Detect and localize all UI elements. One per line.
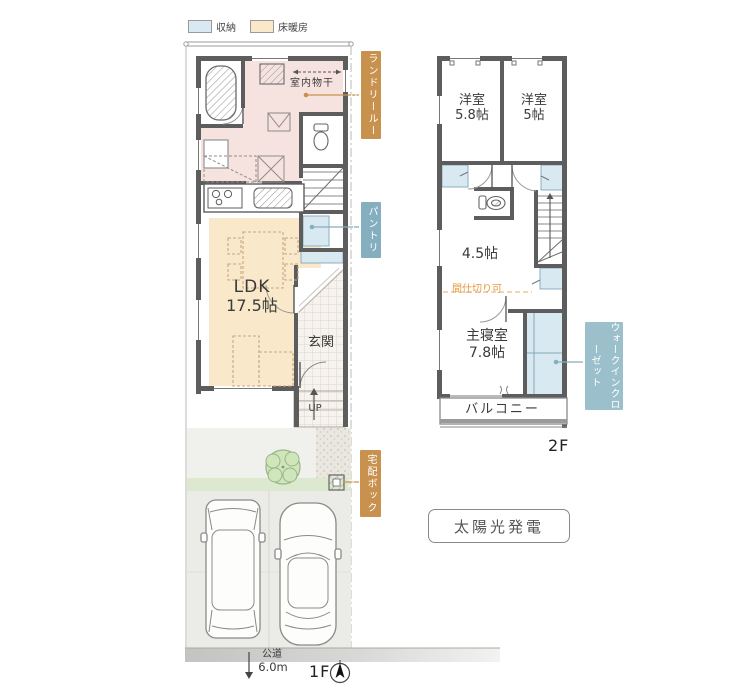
bedroom1-name: 洋室 bbox=[441, 94, 503, 108]
legend-item-floor-heating: 床暖房 bbox=[250, 19, 308, 34]
washing-machine-icon bbox=[260, 64, 284, 84]
free-room-size: 4.5帖 bbox=[448, 247, 512, 262]
callout-delivery-box: 宅配ボックス bbox=[360, 450, 381, 517]
road-width: 6.0m bbox=[254, 661, 292, 674]
callout-laundry-room: ランドリールーム bbox=[361, 51, 381, 139]
bedroom1-size: 5.8帖 bbox=[441, 109, 503, 123]
floorplan-page: 収納 床暖房 室内物干 LDK 17.5帖 玄関 UP 公道 6.0m 1F ラ… bbox=[0, 0, 750, 700]
ldk-size: 17.5帖 bbox=[207, 297, 297, 315]
genkan-label: 玄関 bbox=[297, 336, 345, 350]
partition-note: 間仕切り可 bbox=[452, 284, 502, 295]
road-strip bbox=[185, 648, 500, 662]
floor-heating-swatch bbox=[250, 20, 274, 33]
callout-pantry: パントリー bbox=[361, 202, 381, 258]
vanity-icon bbox=[204, 140, 228, 168]
up-label: UP bbox=[302, 403, 328, 414]
master-name: 主寝室 bbox=[447, 329, 527, 344]
bedroom2-size: 5帖 bbox=[505, 109, 563, 123]
legend: 収納 床暖房 bbox=[188, 19, 308, 34]
storage-label: 収納 bbox=[216, 19, 236, 34]
ldk-name: LDK bbox=[207, 278, 297, 297]
solar-power-label: 太陽光発電 bbox=[428, 509, 570, 543]
floor1-label: 1F bbox=[309, 663, 330, 681]
storage-swatch bbox=[188, 20, 212, 33]
floor-heating-label: 床暖房 bbox=[278, 19, 308, 34]
kitchen-counter bbox=[204, 184, 304, 212]
car-right bbox=[275, 503, 341, 645]
callout-walk-in-closet: ウォークインクローゼット bbox=[585, 322, 623, 410]
toilet-1f-icon bbox=[314, 124, 328, 150]
road-name: 公道 bbox=[256, 649, 288, 660]
master-size: 7.8帖 bbox=[447, 346, 527, 361]
compass-icon bbox=[331, 660, 350, 683]
toilet-2f-icon bbox=[479, 196, 505, 210]
building-1f bbox=[196, 56, 348, 427]
bathtub-icon bbox=[206, 66, 236, 120]
indoor-drying-label: 室内物干 bbox=[290, 78, 334, 89]
car-left bbox=[201, 500, 265, 638]
tree-icon bbox=[266, 450, 300, 484]
legend-item-storage: 収納 bbox=[188, 19, 236, 34]
bedroom2-name: 洋室 bbox=[505, 94, 563, 108]
floor2-label: 2F bbox=[548, 437, 569, 455]
balcony-label: バルコニー bbox=[445, 403, 560, 417]
